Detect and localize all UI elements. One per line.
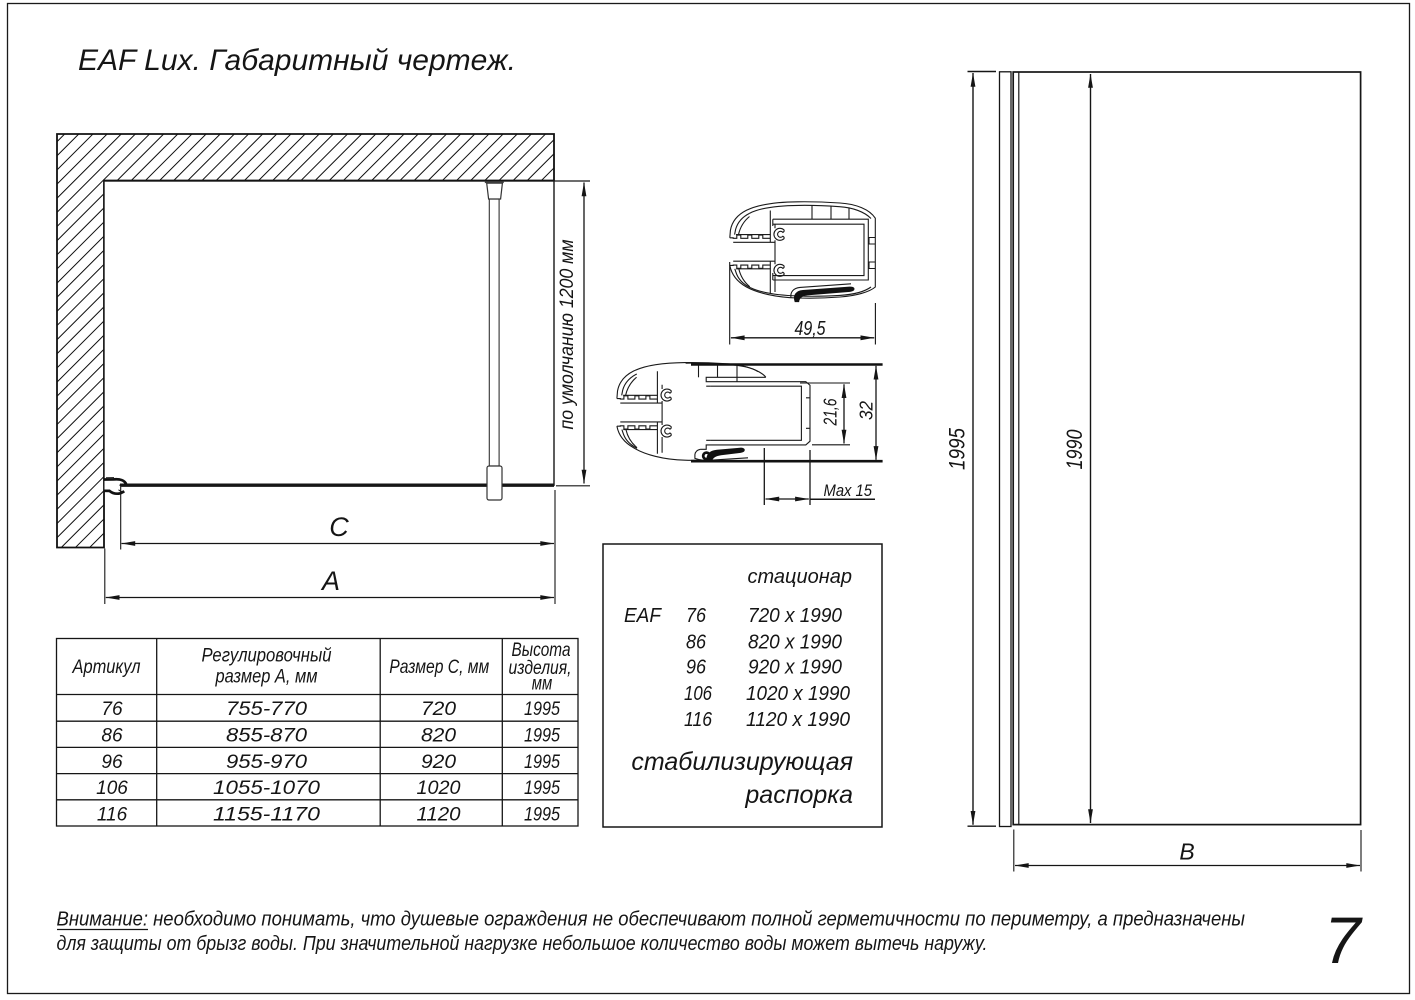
svg-text:21,6: 21,6 (820, 398, 841, 426)
svg-text:820: 820 (421, 725, 456, 746)
svg-text:1990: 1990 (1062, 429, 1087, 470)
svg-text:116: 116 (684, 709, 713, 731)
svg-text:Артикул: Артикул (72, 657, 141, 678)
svg-text:1020: 1020 (417, 778, 461, 799)
svg-text:76: 76 (101, 699, 123, 720)
svg-text:1995: 1995 (524, 752, 560, 773)
svg-text:стабилизирующая: стабилизирующая (631, 748, 853, 776)
svg-text:Max 15: Max 15 (824, 481, 873, 500)
svg-text:7: 7 (1324, 903, 1363, 977)
svg-text:по умолчанию 1200 мм: по умолчанию 1200 мм (556, 240, 578, 430)
svg-text:1020 x 1990: 1020 x 1990 (746, 683, 850, 705)
svg-text:86: 86 (101, 725, 123, 746)
svg-text:для защиты от брызг воды. При: для защиты от брызг воды. При значительн… (57, 932, 988, 955)
svg-text:Размер С, мм: Размер С, мм (389, 657, 489, 678)
svg-text:1995: 1995 (524, 699, 560, 720)
svg-text:720 x 1990: 720 x 1990 (748, 605, 842, 627)
svg-text:1155-1170: 1155-1170 (213, 805, 321, 826)
svg-text:116: 116 (97, 805, 128, 826)
svg-text:96: 96 (101, 752, 123, 773)
svg-text:76: 76 (686, 605, 707, 627)
svg-text:распорка: распорка (744, 781, 853, 809)
svg-text:1995: 1995 (524, 805, 560, 826)
svg-text:49,5: 49,5 (795, 318, 827, 340)
svg-text:820 x 1990: 820 x 1990 (748, 632, 842, 654)
svg-text:мм: мм (532, 674, 553, 695)
svg-text:1995: 1995 (945, 427, 970, 470)
svg-text:86: 86 (686, 632, 707, 654)
svg-text:720: 720 (421, 699, 456, 720)
svg-text:755-770: 755-770 (226, 699, 307, 720)
svg-text:1995: 1995 (524, 725, 560, 746)
svg-text:32: 32 (856, 400, 877, 420)
svg-text:106: 106 (684, 683, 713, 705)
svg-text:B: B (1179, 839, 1194, 865)
svg-text:размер А, мм: размер А, мм (215, 667, 318, 688)
svg-text:1120: 1120 (417, 805, 461, 826)
svg-text:920 x 1990: 920 x 1990 (748, 656, 842, 678)
svg-text:1995: 1995 (524, 778, 560, 799)
svg-text:106: 106 (96, 778, 128, 799)
svg-text:855-870: 855-870 (226, 725, 307, 746)
svg-text:1055-1070: 1055-1070 (213, 778, 320, 799)
svg-text:Внимание: необходимо понимать,: Внимание: необходимо понимать, что душев… (57, 908, 1246, 931)
svg-text:EAF Lux. Габаритный чертеж.: EAF Lux. Габаритный чертеж. (78, 44, 516, 77)
svg-text:A: A (320, 566, 340, 596)
svg-text:1120 x 1990: 1120 x 1990 (746, 709, 850, 731)
svg-text:955-970: 955-970 (226, 752, 307, 773)
svg-text:96: 96 (686, 656, 707, 678)
svg-text:EAF: EAF (624, 605, 663, 627)
svg-text:стационар: стационар (748, 566, 853, 588)
svg-text:C: C (329, 512, 349, 542)
svg-text:Регулировочный: Регулировочный (202, 646, 332, 667)
svg-text:920: 920 (421, 752, 456, 773)
